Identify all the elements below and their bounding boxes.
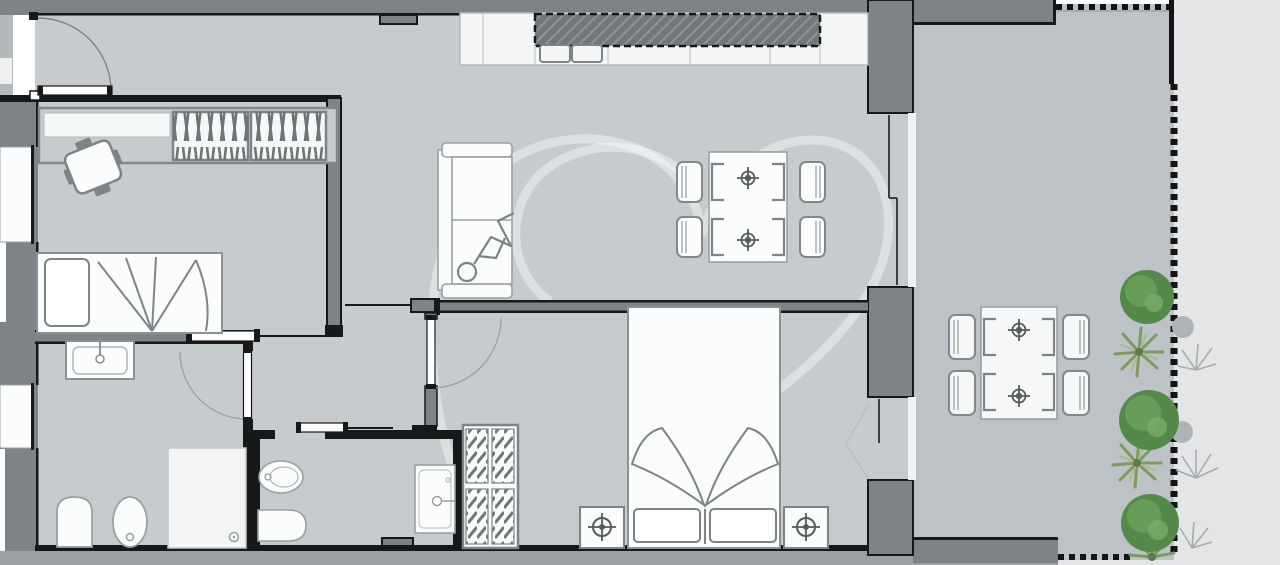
exterior-gap [0, 240, 6, 322]
bottom-wall-notch [382, 538, 413, 546]
tree [1121, 494, 1179, 552]
door-cap [426, 315, 436, 320]
pillow [710, 509, 776, 542]
terrace-upper-wall-cap [1053, 0, 1056, 25]
books [251, 112, 326, 160]
wall-end-cap [325, 325, 343, 337]
door-cap [343, 422, 348, 433]
exterior-gap [0, 449, 5, 553]
single-bed [37, 253, 222, 333]
terrace-upper-wall-line [913, 22, 1056, 25]
slider-sill-living [908, 113, 916, 287]
washbasin [66, 341, 134, 379]
terrace-bottom-wall [913, 537, 1058, 563]
left-wall-line [36, 448, 39, 545]
slider-sill-bedroom [908, 397, 916, 480]
shower [168, 448, 246, 548]
wall-notch [380, 15, 417, 24]
bidet [259, 461, 303, 493]
window-bathroom1 [0, 385, 33, 448]
masterbed-left-wall-bottom [425, 386, 437, 426]
bush-gray [1172, 316, 1194, 338]
window-frame [31, 383, 34, 450]
exterior-ground [1174, 0, 1280, 565]
entry-door-leaf [38, 86, 112, 95]
pillow [634, 509, 700, 542]
railing-corner [1169, 0, 1174, 84]
pocket-door-track [258, 335, 326, 337]
entrance-hall-wall [0, 95, 341, 102]
wall-line [437, 300, 868, 303]
door-hinge-block [29, 12, 38, 20]
toilet [57, 497, 92, 547]
wardrobe [463, 425, 518, 548]
right-wall-middle [868, 287, 913, 397]
nightstand-left [580, 507, 624, 548]
bidet [113, 497, 147, 547]
masterbed-door-leaf [427, 318, 435, 386]
kitchen [460, 13, 868, 65]
nightstand-right [784, 507, 828, 548]
washbasin [415, 465, 455, 533]
door-cap [107, 86, 112, 95]
books [173, 112, 248, 160]
door-cap [254, 329, 260, 342]
entry-recess-panel [0, 58, 12, 84]
door-cap [296, 422, 301, 433]
hall-door-track [345, 304, 415, 306]
toilet [258, 510, 306, 541]
door-cap [38, 86, 43, 95]
pocket-door-track [345, 427, 393, 429]
terrace-bottom-wall-line [913, 537, 1058, 540]
left-wall-line [36, 343, 39, 385]
palm [1114, 327, 1163, 376]
tree [1120, 270, 1174, 324]
terrace-upper-wall [913, 0, 1056, 25]
pocket-door-panel-bathroom2 [299, 423, 345, 432]
pillow [45, 259, 89, 326]
bathroom1-door-leaf [244, 352, 252, 418]
tree [1119, 390, 1179, 450]
window-bedroom2 [0, 147, 33, 242]
floor-plan-drawing [0, 0, 1280, 565]
exterior-strip [1058, 560, 1178, 565]
door-cap [243, 417, 252, 422]
door-cap [243, 348, 252, 353]
door-cap [426, 384, 436, 389]
hall-door-panel [411, 299, 437, 312]
kitchen-counter-hatched [535, 14, 820, 46]
right-wall-lower [868, 480, 913, 555]
double-bed [628, 307, 780, 548]
floor-plan-canvas [0, 0, 1280, 565]
right-wall-upper [868, 0, 913, 113]
window-frame [31, 145, 34, 244]
